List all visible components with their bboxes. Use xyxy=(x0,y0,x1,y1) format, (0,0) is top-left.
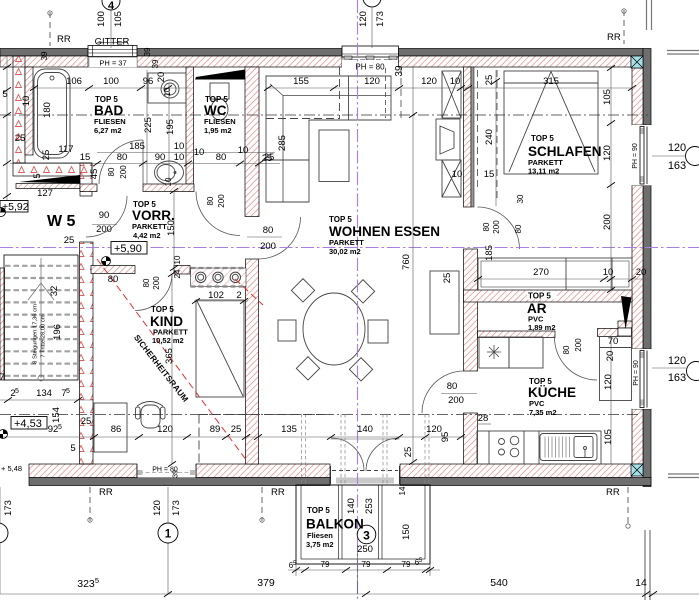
svg-text:5: 5 xyxy=(58,424,62,431)
svg-text:10: 10 xyxy=(174,141,185,152)
svg-text:TOP 5: TOP 5 xyxy=(528,292,551,301)
svg-text:25: 25 xyxy=(484,75,495,86)
svg-text:285: 285 xyxy=(277,135,288,151)
svg-text:173: 173 xyxy=(171,500,182,516)
svg-text:PARKETT: PARKETT xyxy=(132,222,167,231)
svg-text:3,75 m2: 3,75 m2 xyxy=(306,540,334,549)
svg-text:253: 253 xyxy=(364,498,375,514)
svg-text:79: 79 xyxy=(321,560,330,569)
svg-text:RR: RR xyxy=(606,487,620,498)
svg-text:7 Tritte 28,00 cm: 7 Tritte 28,00 cm xyxy=(41,314,47,357)
svg-text:80: 80 xyxy=(117,152,128,163)
svg-text:120: 120 xyxy=(152,500,163,516)
svg-text:135: 135 xyxy=(281,424,297,435)
svg-text:25: 25 xyxy=(64,235,75,246)
svg-text:25: 25 xyxy=(403,447,414,458)
svg-text:79: 79 xyxy=(362,560,371,569)
svg-text:5: 5 xyxy=(15,388,19,395)
svg-text:10: 10 xyxy=(21,96,32,107)
svg-text:Fliesen: Fliesen xyxy=(307,531,333,540)
svg-text:10: 10 xyxy=(603,267,614,278)
svg-text:379: 379 xyxy=(257,577,275,589)
svg-text:80: 80 xyxy=(562,345,571,354)
svg-text:15: 15 xyxy=(80,152,91,163)
svg-text:+ 5,48: + 5,48 xyxy=(1,464,22,473)
svg-text:120: 120 xyxy=(421,76,437,87)
svg-text:100: 100 xyxy=(96,11,107,27)
svg-text:PARKETT: PARKETT xyxy=(329,238,364,247)
svg-text:106: 106 xyxy=(66,76,82,87)
svg-text:127: 127 xyxy=(37,188,53,199)
svg-text:80: 80 xyxy=(447,381,458,392)
svg-text:200: 200 xyxy=(602,214,613,230)
svg-text:195: 195 xyxy=(165,119,176,135)
svg-text:10,52 m2: 10,52 m2 xyxy=(152,336,184,345)
svg-text:W 5: W 5 xyxy=(47,213,76,230)
svg-text:315: 315 xyxy=(543,76,559,87)
svg-text:30: 30 xyxy=(516,194,525,203)
svg-text:25: 25 xyxy=(262,153,273,164)
svg-text:+5,90: +5,90 xyxy=(114,243,142,255)
svg-text:39: 39 xyxy=(40,51,49,60)
svg-text:120: 120 xyxy=(668,355,686,367)
svg-text:323: 323 xyxy=(77,578,95,590)
svg-text:GITTER: GITTER xyxy=(95,37,130,48)
svg-text:FLIESEN: FLIESEN xyxy=(94,117,126,126)
svg-text:155: 155 xyxy=(293,76,309,87)
svg-text:6,27 m2: 6,27 m2 xyxy=(94,126,122,135)
svg-text:95: 95 xyxy=(440,432,451,443)
svg-text:TOP 5: TOP 5 xyxy=(531,134,554,143)
svg-text:RR: RR xyxy=(99,487,113,498)
svg-text:5: 5 xyxy=(95,576,99,585)
svg-text:140: 140 xyxy=(346,498,357,514)
svg-text:120: 120 xyxy=(157,424,173,435)
svg-text:185: 185 xyxy=(484,245,495,261)
svg-text:102: 102 xyxy=(208,290,224,301)
svg-text:25: 25 xyxy=(442,273,453,284)
svg-text:7: 7 xyxy=(0,372,5,383)
svg-text:540: 540 xyxy=(490,577,508,589)
svg-text:80: 80 xyxy=(206,196,215,205)
svg-text:SCHLAFEN: SCHLAFEN xyxy=(528,144,602,159)
svg-text:10: 10 xyxy=(174,152,185,163)
svg-text:10: 10 xyxy=(238,145,249,156)
svg-text:250: 250 xyxy=(357,544,373,555)
svg-text:200: 200 xyxy=(574,338,583,352)
svg-text:RR: RR xyxy=(271,487,285,498)
svg-text:WOHNEN ESSEN: WOHNEN ESSEN xyxy=(329,224,440,239)
svg-text:30,02 m2: 30,02 m2 xyxy=(329,247,361,256)
svg-text:80: 80 xyxy=(482,222,491,231)
svg-text:5: 5 xyxy=(32,173,43,178)
svg-text:14: 14 xyxy=(398,486,407,495)
svg-text:365: 365 xyxy=(164,348,175,364)
svg-text:PH = 90: PH = 90 xyxy=(633,360,640,386)
svg-text:92: 92 xyxy=(48,424,59,435)
svg-text:BAD: BAD xyxy=(94,103,123,118)
svg-text:760: 760 xyxy=(401,254,412,270)
svg-text:80: 80 xyxy=(107,167,116,176)
svg-text:28: 28 xyxy=(478,413,489,424)
svg-text:200: 200 xyxy=(217,194,226,208)
svg-text:3: 3 xyxy=(363,529,370,543)
svg-text:20: 20 xyxy=(156,72,167,83)
svg-text:2: 2 xyxy=(236,290,241,301)
svg-text:10: 10 xyxy=(450,76,461,87)
svg-text:32: 32 xyxy=(49,286,60,297)
svg-text:10: 10 xyxy=(163,87,172,96)
svg-text:105: 105 xyxy=(602,89,613,105)
svg-text:RR: RR xyxy=(607,32,621,43)
svg-text:180: 180 xyxy=(42,102,53,118)
svg-text:120: 120 xyxy=(603,374,614,390)
svg-text:20: 20 xyxy=(605,351,616,362)
svg-text:173: 173 xyxy=(375,11,386,27)
svg-text:200: 200 xyxy=(260,241,276,252)
svg-text:120: 120 xyxy=(602,145,613,161)
svg-text:5: 5 xyxy=(70,443,75,454)
svg-text:80: 80 xyxy=(216,152,227,163)
svg-text:45: 45 xyxy=(89,169,100,180)
svg-text:25: 25 xyxy=(41,150,52,161)
svg-text:80: 80 xyxy=(142,278,151,287)
svg-text:10: 10 xyxy=(194,147,205,158)
svg-text:89: 89 xyxy=(210,424,221,435)
svg-text:13,11 m2: 13,11 m2 xyxy=(528,167,559,176)
svg-text:KÜCHE: KÜCHE xyxy=(528,385,576,400)
svg-text:WC: WC xyxy=(204,103,227,118)
svg-text:240: 240 xyxy=(484,129,495,145)
svg-text:105: 105 xyxy=(113,11,124,27)
svg-text:PVC: PVC xyxy=(529,399,545,408)
svg-text:200: 200 xyxy=(119,165,128,179)
svg-text:185: 185 xyxy=(129,141,145,152)
svg-text:PH = 80: PH = 80 xyxy=(355,63,385,72)
svg-text:150: 150 xyxy=(166,220,177,236)
svg-text:70: 70 xyxy=(608,336,619,347)
svg-text:TOP 5: TOP 5 xyxy=(151,305,174,314)
svg-text:90: 90 xyxy=(155,152,166,163)
svg-text:25: 25 xyxy=(231,424,242,435)
svg-text:24: 24 xyxy=(173,269,182,278)
svg-text:200: 200 xyxy=(448,395,464,406)
svg-text:PH = 37: PH = 37 xyxy=(99,59,126,68)
svg-text:BALKON: BALKON xyxy=(306,517,364,532)
svg-text:270: 270 xyxy=(533,267,549,278)
svg-text:39: 39 xyxy=(151,59,160,68)
svg-text:196: 196 xyxy=(52,324,63,340)
svg-text:134: 134 xyxy=(36,388,52,399)
svg-text:96: 96 xyxy=(143,76,154,87)
svg-text:4: 4 xyxy=(108,0,115,12)
svg-text:154: 154 xyxy=(51,407,62,423)
svg-text:FLIESEN: FLIESEN xyxy=(204,117,236,126)
svg-text:140: 140 xyxy=(357,424,373,435)
svg-text:39: 39 xyxy=(173,470,180,478)
svg-text:117: 117 xyxy=(58,144,73,155)
svg-text:PH = 90: PH = 90 xyxy=(632,143,639,169)
svg-text:80: 80 xyxy=(514,224,523,233)
svg-text:163: 163 xyxy=(668,160,686,172)
svg-text:5: 5 xyxy=(2,89,7,100)
svg-text:200: 200 xyxy=(152,276,161,290)
svg-text:150: 150 xyxy=(401,524,412,540)
svg-text:1,95 m2: 1,95 m2 xyxy=(204,126,232,135)
svg-text:39: 39 xyxy=(143,47,152,56)
svg-text:8 Steigungen 17,36 cm: 8 Steigungen 17,36 cm xyxy=(33,304,39,364)
svg-text:7,35 m2: 7,35 m2 xyxy=(529,408,557,417)
svg-text:163: 163 xyxy=(668,372,686,384)
svg-text:86: 86 xyxy=(111,424,122,435)
svg-text:90: 90 xyxy=(99,210,110,221)
svg-text:120: 120 xyxy=(358,11,369,27)
svg-text:120: 120 xyxy=(668,142,686,154)
svg-text:80: 80 xyxy=(108,274,119,285)
svg-text:4,42 m2: 4,42 m2 xyxy=(133,231,161,240)
svg-text:25: 25 xyxy=(81,416,92,427)
svg-text:TOP 5: TOP 5 xyxy=(307,506,330,515)
svg-text:120: 120 xyxy=(364,76,380,87)
svg-text:5: 5 xyxy=(66,388,70,395)
svg-text:15: 15 xyxy=(484,169,495,180)
svg-text:1: 1 xyxy=(165,529,172,541)
svg-text:200: 200 xyxy=(492,220,501,234)
svg-text:14: 14 xyxy=(635,577,647,589)
svg-text:+5,92: +5,92 xyxy=(2,201,29,213)
svg-text:225: 225 xyxy=(143,117,154,133)
svg-text:105: 105 xyxy=(603,429,614,445)
svg-text:25: 25 xyxy=(15,133,26,144)
svg-text:20: 20 xyxy=(636,267,647,278)
svg-text:173: 173 xyxy=(3,500,14,516)
svg-text:10: 10 xyxy=(173,255,182,264)
svg-text:10: 10 xyxy=(452,169,463,180)
svg-text:79: 79 xyxy=(402,560,411,569)
svg-text:TOP 5: TOP 5 xyxy=(329,215,352,224)
svg-text:1,89 m2: 1,89 m2 xyxy=(528,323,556,332)
svg-text:100: 100 xyxy=(103,76,119,87)
svg-text:80: 80 xyxy=(263,225,274,236)
svg-text:10: 10 xyxy=(164,177,173,186)
svg-text:39: 39 xyxy=(394,65,405,77)
svg-text:+4,53: +4,53 xyxy=(14,418,42,430)
svg-text:200: 200 xyxy=(96,224,112,235)
svg-text:RR: RR xyxy=(57,34,71,45)
